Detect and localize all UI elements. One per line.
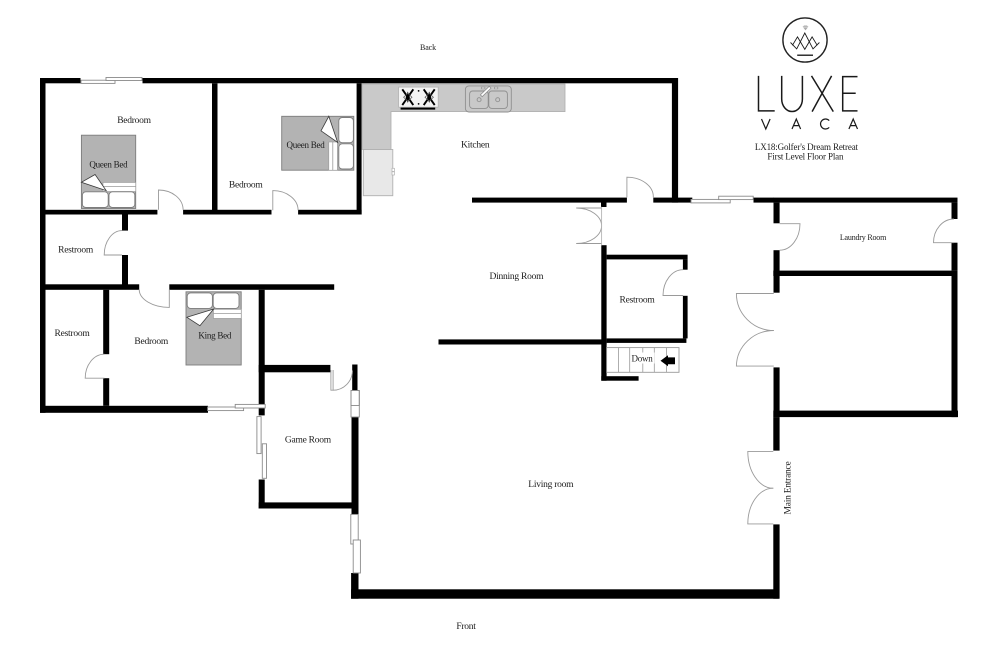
svg-text:Laundry Room: Laundry Room <box>840 233 887 242</box>
svg-text:Restroom: Restroom <box>620 296 656 306</box>
svg-text:First Level Floor Plan: First Level Floor Plan <box>767 152 844 162</box>
svg-text:Queen Bed: Queen Bed <box>287 140 326 150</box>
svg-text:Kitchen: Kitchen <box>461 141 490 151</box>
svg-text:Queen Bed: Queen Bed <box>89 159 128 169</box>
svg-text:Front: Front <box>456 622 476 632</box>
svg-text:Down: Down <box>632 353 654 363</box>
svg-text:King Bed: King Bed <box>198 331 231 341</box>
svg-text:Restroom: Restroom <box>58 245 94 255</box>
svg-text:Living room: Living room <box>528 480 574 490</box>
svg-text:Bedroom: Bedroom <box>117 116 151 126</box>
svg-text:Bedroom: Bedroom <box>134 337 168 347</box>
svg-text:Dinning Room: Dinning Room <box>490 272 545 282</box>
svg-text:Restroom: Restroom <box>55 329 91 339</box>
svg-text:Back: Back <box>420 43 436 52</box>
svg-text:Game Room: Game Room <box>285 436 332 446</box>
svg-text:Bedroom: Bedroom <box>229 181 263 191</box>
svg-text:Main Entrance: Main Entrance <box>784 462 794 515</box>
